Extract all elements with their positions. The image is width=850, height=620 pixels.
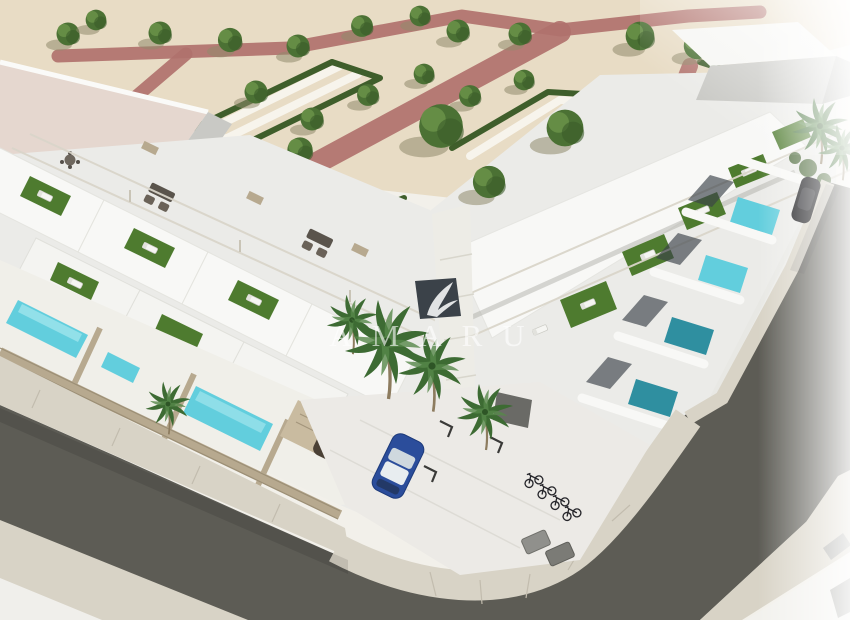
render-scene: AMARU — [0, 0, 850, 620]
watermark-text: AMARU — [329, 318, 544, 353]
topright-fade — [640, 0, 850, 155]
architectural-render: AMARU — [0, 0, 850, 620]
